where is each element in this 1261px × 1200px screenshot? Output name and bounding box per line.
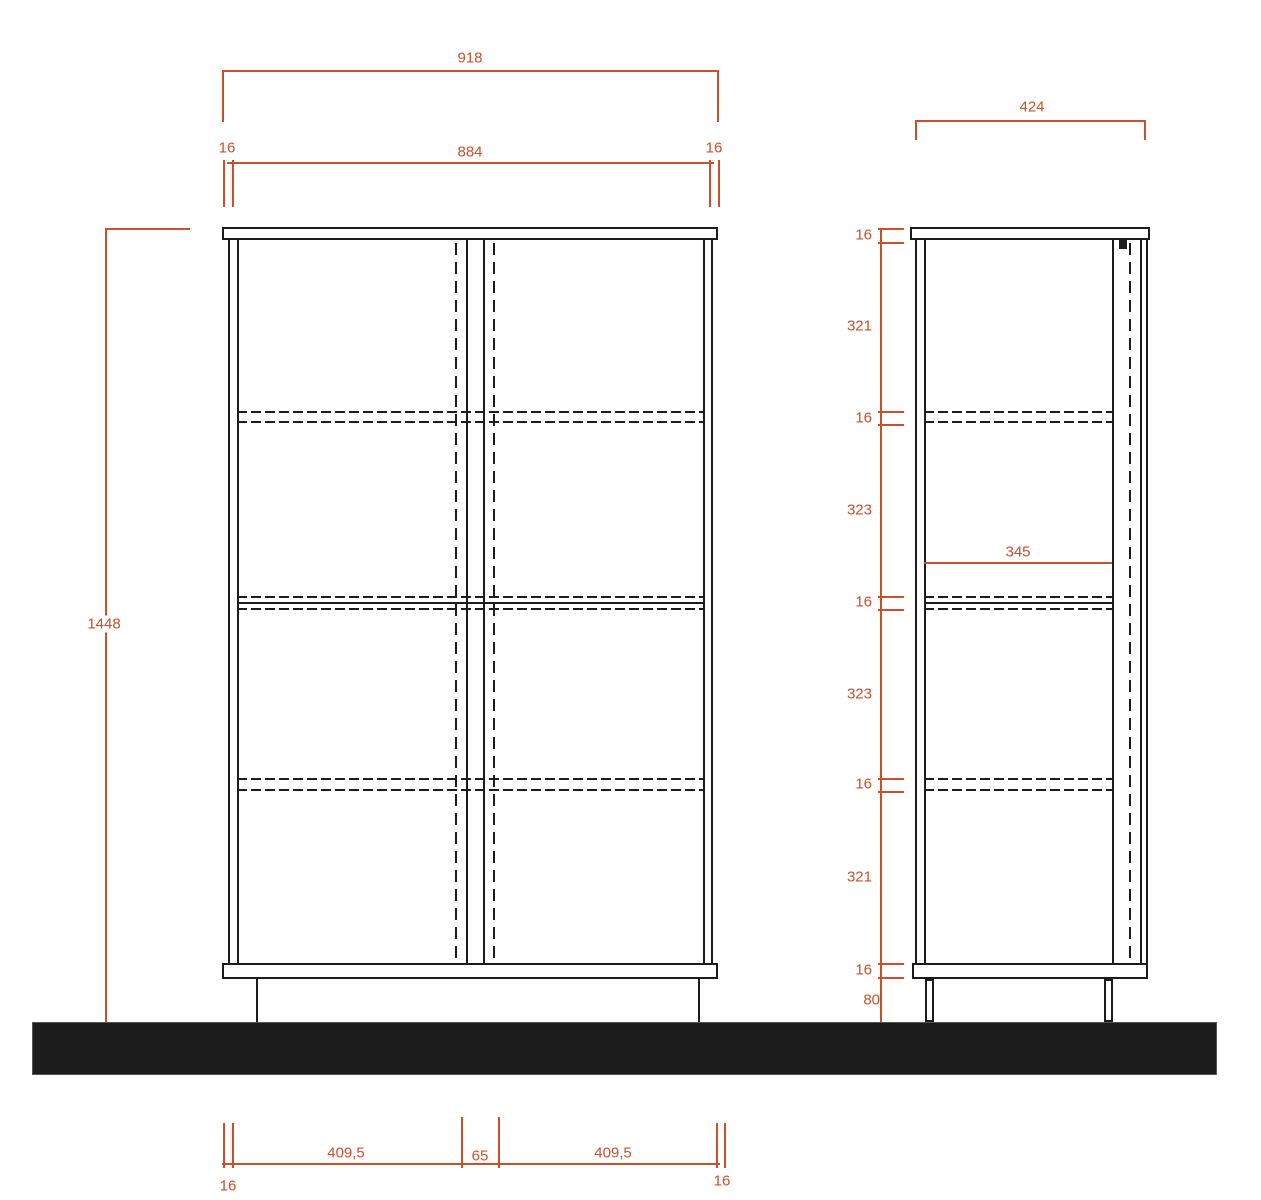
- dim-bottom-ext-left-a: [223, 1123, 225, 1168]
- side-back-panel-outer-line: [915, 240, 917, 963]
- chain-tick-6: [878, 609, 904, 611]
- side-shelf3-hidden-line-bottom: [924, 789, 1112, 791]
- front-shelf2-hidden-line-top: [237, 596, 703, 598]
- floor-bar: [32, 1022, 1217, 1075]
- dim-wall-right-ext-a: [709, 160, 711, 207]
- dim-wall-right-ext-b: [718, 160, 720, 207]
- chain-tick-5: [878, 596, 904, 598]
- dim-bottom-wall-right-label: 16: [714, 1174, 731, 1189]
- dim-overall-width-ext-left: [222, 70, 224, 122]
- side-shelf2-solid-line: [924, 602, 1112, 604]
- dim-depth-label: 424: [1016, 99, 1047, 116]
- side-door-face-inner-line: [1140, 240, 1142, 963]
- side-plinth-front-leg: [925, 979, 934, 1022]
- chain-label-bay3: 323: [847, 687, 872, 702]
- dim-left-door-label: 409,5: [327, 1146, 365, 1161]
- side-bottom-panel: [912, 963, 1148, 979]
- dim-height-chain-line: [880, 228, 882, 1022]
- front-left-panel-outer-line: [228, 240, 230, 963]
- side-door-hidden-line: [1129, 243, 1131, 963]
- dim-right-door-label: 409,5: [594, 1146, 632, 1161]
- chain-label-bay2: 323: [847, 503, 872, 518]
- technical-drawing-canvas: 918 16 884 16 1448 409,5 65 409,5 16 16 …: [0, 0, 1261, 1200]
- dim-overall-height-label: 1448: [84, 616, 123, 633]
- front-bottom-panel: [222, 963, 718, 979]
- dim-bottom-ext-center-a: [461, 1117, 463, 1168]
- chain-label-shelf3: 16: [855, 777, 872, 792]
- dim-bottom-wall-left-label: 16: [220, 1179, 237, 1194]
- chain-tick-7: [878, 778, 904, 780]
- chain-tick-3: [878, 411, 904, 413]
- dim-center-gap-label: 65: [472, 1149, 489, 1164]
- front-shelf2-hidden-line-bottom: [237, 608, 703, 610]
- dim-internal-depth-line: [924, 562, 1112, 564]
- side-plinth-back-leg: [1104, 979, 1113, 1022]
- dim-carcass-width-label: 884: [454, 144, 485, 161]
- side-shelf2-hidden-line-top: [924, 596, 1112, 598]
- front-plinth-right-line: [698, 979, 700, 1022]
- chain-label-shelf1: 16: [855, 411, 872, 426]
- chain-tick-4: [878, 424, 904, 426]
- front-right-panel-outer-line: [711, 240, 713, 963]
- side-shelf2-hidden-line-bottom: [924, 608, 1112, 610]
- side-hinge-mark: [1119, 239, 1127, 249]
- chain-label-bay1: 321: [847, 319, 872, 334]
- dim-bottom-ext-center-b: [498, 1117, 500, 1168]
- chain-tick-8: [878, 791, 904, 793]
- dim-overall-width-label: 918: [454, 50, 485, 67]
- side-shelf3-hidden-line-top: [924, 778, 1112, 780]
- dim-bottom-ext-left-b: [232, 1123, 234, 1168]
- front-shelf3-hidden-line-top: [237, 778, 703, 780]
- chain-tick-2: [878, 242, 904, 244]
- dim-overall-height-tick: [105, 228, 190, 230]
- chain-label-bottom-panel: 16: [855, 963, 872, 978]
- front-right-panel-inner-line: [703, 240, 705, 963]
- side-top-panel: [910, 227, 1150, 240]
- dim-bottom-ext-right-a: [716, 1123, 718, 1168]
- front-plinth-left-line: [256, 979, 258, 1022]
- chain-label-top-panel: 16: [855, 228, 872, 243]
- dim-depth-line: [915, 120, 1145, 122]
- dim-bottom-ext-right-b: [724, 1123, 726, 1168]
- front-shelf1-hidden-line-top: [237, 411, 703, 413]
- front-shelf3-hidden-line-bottom: [237, 789, 703, 791]
- dim-depth-ext-left: [915, 120, 917, 140]
- side-shelf1-hidden-line-bottom: [924, 421, 1112, 423]
- front-shelf1-hidden-line-bottom: [237, 421, 703, 423]
- side-carcass-front-line: [1112, 240, 1114, 963]
- chain-label-plinth: 80: [863, 993, 880, 1008]
- chain-tick-9: [878, 963, 904, 965]
- front-top-panel: [222, 227, 718, 240]
- dim-wall-right-label: 16: [706, 141, 723, 156]
- side-door-face-outer-line: [1146, 240, 1148, 963]
- dim-depth-ext-right: [1144, 120, 1146, 140]
- dim-internal-depth-label: 345: [1005, 545, 1030, 560]
- dim-overall-width-ext-right: [717, 70, 719, 122]
- dim-wall-left-ext-a: [223, 160, 225, 207]
- dim-carcass-width-line: [227, 162, 714, 164]
- front-shelf2-solid-line: [237, 602, 703, 604]
- chain-tick-1: [878, 228, 904, 230]
- dim-overall-width-line: [222, 70, 718, 72]
- dim-wall-left-label: 16: [219, 141, 236, 156]
- dim-wall-left-ext-b: [232, 160, 234, 207]
- chain-label-shelf2: 16: [855, 595, 872, 610]
- chain-tick-10: [878, 977, 904, 979]
- side-shelf1-hidden-line-top: [924, 411, 1112, 413]
- chain-label-bay4: 321: [847, 870, 872, 885]
